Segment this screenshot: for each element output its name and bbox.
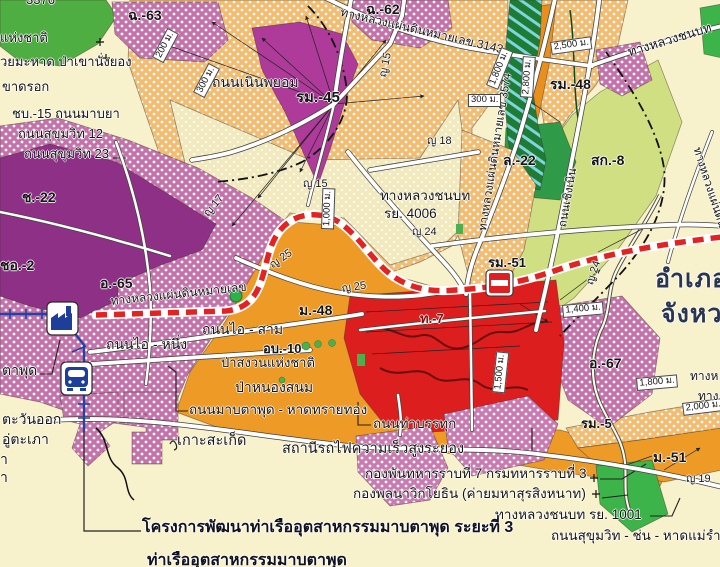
admin-label: จังหว: [661, 301, 720, 328]
road-label: ถนนสุขุมวิท 12: [18, 127, 103, 141]
zone-code-label: รม.-51: [488, 256, 526, 270]
road-label: ถนนเชิงเนิน: [557, 167, 580, 228]
distance-label: 2,500 ม.: [550, 36, 593, 55]
zone-code-label: ท.-7: [420, 312, 444, 326]
zone-code-label: รม.-5: [581, 417, 612, 431]
partial-label: า: [0, 452, 8, 467]
distance-label: 1,000 ม.: [321, 188, 335, 230]
road-label: ญ 24: [585, 260, 604, 287]
label-layer: 3376แห่งชาติวยมะหาด ป่าเขานั่งยองขาดรอกช…: [0, 0, 720, 567]
zone-code-label: ม.-48: [299, 303, 332, 318]
road-label: ทางหลวงชนบท: [380, 189, 470, 204]
distance-label: 200 ม.: [152, 28, 179, 64]
road-label: ถนนไอ - หนึ่ง: [106, 337, 187, 352]
distance-label: 1,800 ม.: [636, 374, 678, 390]
zone-code-label: สก.-8: [591, 153, 624, 168]
place-label: เกาะสะเก็ด: [177, 434, 246, 450]
road-label: ถนนสุขุมวิท 23: [24, 147, 109, 161]
zone-code-label: รม.-45: [296, 90, 340, 106]
road-label: ถนนเนินพยอม: [212, 75, 299, 90]
road-label: ถนนไอ - สาม: [202, 322, 283, 337]
place-label: ป่าสงวนแห่งชาติ: [221, 356, 315, 370]
road-label: ญ 15: [378, 52, 395, 79]
distance-label: 300 ม.: [468, 94, 501, 107]
place-label: สถานีรถไฟความเร็วสูงระยอง: [282, 442, 464, 458]
distance-label: 1,500 ม.: [492, 351, 509, 393]
place-label: ขาดรอก: [2, 80, 49, 94]
place-label: ป่าหนองสนม: [235, 380, 313, 395]
admin-label: อำเภอ: [655, 266, 720, 293]
road-label: ญ 25: [268, 248, 295, 272]
road-label: รย. 4006: [384, 207, 437, 222]
zone-code-label: ล.-22: [503, 153, 536, 168]
partial-label: า: [0, 470, 8, 485]
road-label: ทางหลวงชนบท รย. 1001: [495, 508, 642, 523]
road-label: ถนนสุขุมวิท - ช่น - หาดแม่รำพึง: [551, 529, 720, 544]
distance-label: 2,800 ม.: [520, 56, 536, 98]
road-label: ญ 25: [341, 281, 367, 296]
zone-code-label: ฉ.-63: [128, 8, 162, 23]
road-label: ทางหลวงชนบท: [626, 21, 713, 60]
zone-code-label: อบ.-10: [263, 342, 301, 356]
partial-label: ทางห: [690, 370, 718, 383]
road-label: ทางหลวงแผ่นดิน: [690, 146, 720, 229]
road-label: ทางหลวงแผ่นดินหมายเลข 3143: [339, 6, 504, 56]
road-label: ญ 19: [686, 474, 711, 486]
distance-label: 1,400 ม.: [562, 301, 604, 317]
place-label: อู่ตะเภา: [2, 432, 49, 447]
zone-code-label: ชอ.-2: [0, 258, 34, 273]
place-label: วยมะหาด ป่าเขานั่งยอง: [0, 55, 132, 69]
place-label: แห่งชาติ: [0, 31, 48, 45]
map-viewport: 3376แห่งชาติวยมะหาด ป่าเขานั่งยองขาดรอกช…: [0, 0, 720, 567]
road-label: ญ 18: [427, 136, 452, 148]
zone-code-label: ช.-22: [22, 190, 56, 205]
partial-label: ทาง: [698, 390, 719, 403]
zone-code-label: อ.-65: [100, 276, 133, 291]
road-label: ชบ.-15 ถนนมาบยา: [12, 107, 120, 121]
road-label: ถนนมาบตาพุด - หาดทรายทอง: [189, 403, 367, 418]
zone-code-label: รม.-48: [550, 77, 591, 92]
zone-code-label: อ.-67: [589, 356, 622, 371]
note-label: ท่าเรืออุตสาหกรรมมาบตาพุด: [147, 552, 347, 567]
road-label: ญ 24: [412, 227, 437, 239]
place-label: กองพลนาวิกโยธิน (ค่ายมหาสุรสิงหนาท): [353, 487, 586, 502]
place-label: ตาพุด: [2, 363, 37, 378]
note-label: โครงการพัฒนาท่าเรืออุตสาหกรรมมาบตาพุด ระ…: [142, 519, 513, 536]
zone-code-label: ม.-51: [653, 450, 686, 465]
road-label: ญ 17: [202, 193, 227, 220]
road-label: ถนนท่าบรรทุก: [373, 417, 456, 432]
place-label: กองพันทหารราบที่ 7 กรมทหารราบที่ 3: [365, 467, 586, 482]
partial-label: 3376: [26, 0, 55, 7]
place-label: ตะวันออก: [2, 412, 61, 427]
